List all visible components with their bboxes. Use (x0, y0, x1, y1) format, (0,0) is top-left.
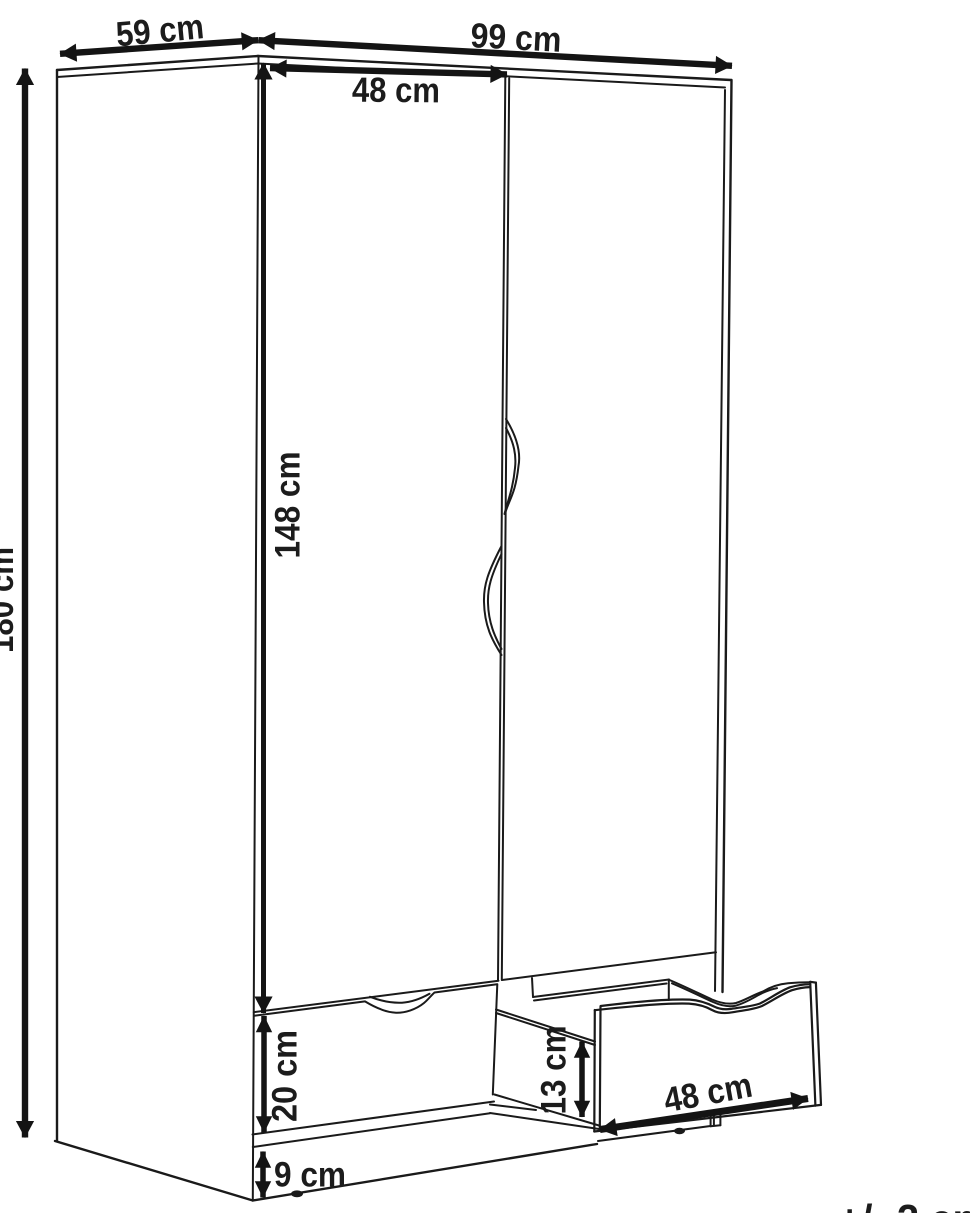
svg-text:48 cm: 48 cm (661, 1066, 756, 1121)
svg-text:9 cm: 9 cm (274, 1156, 346, 1195)
svg-text:13 cm: 13 cm (535, 1026, 574, 1115)
svg-text:+/- 2 cm: +/- 2 cm (838, 1196, 970, 1213)
svg-text:148 cm: 148 cm (269, 452, 308, 559)
svg-text:20 cm: 20 cm (266, 1030, 305, 1122)
svg-text:99 cm: 99 cm (470, 16, 563, 60)
svg-text:48 cm: 48 cm (352, 71, 440, 111)
svg-text:180 cm: 180 cm (0, 547, 21, 653)
